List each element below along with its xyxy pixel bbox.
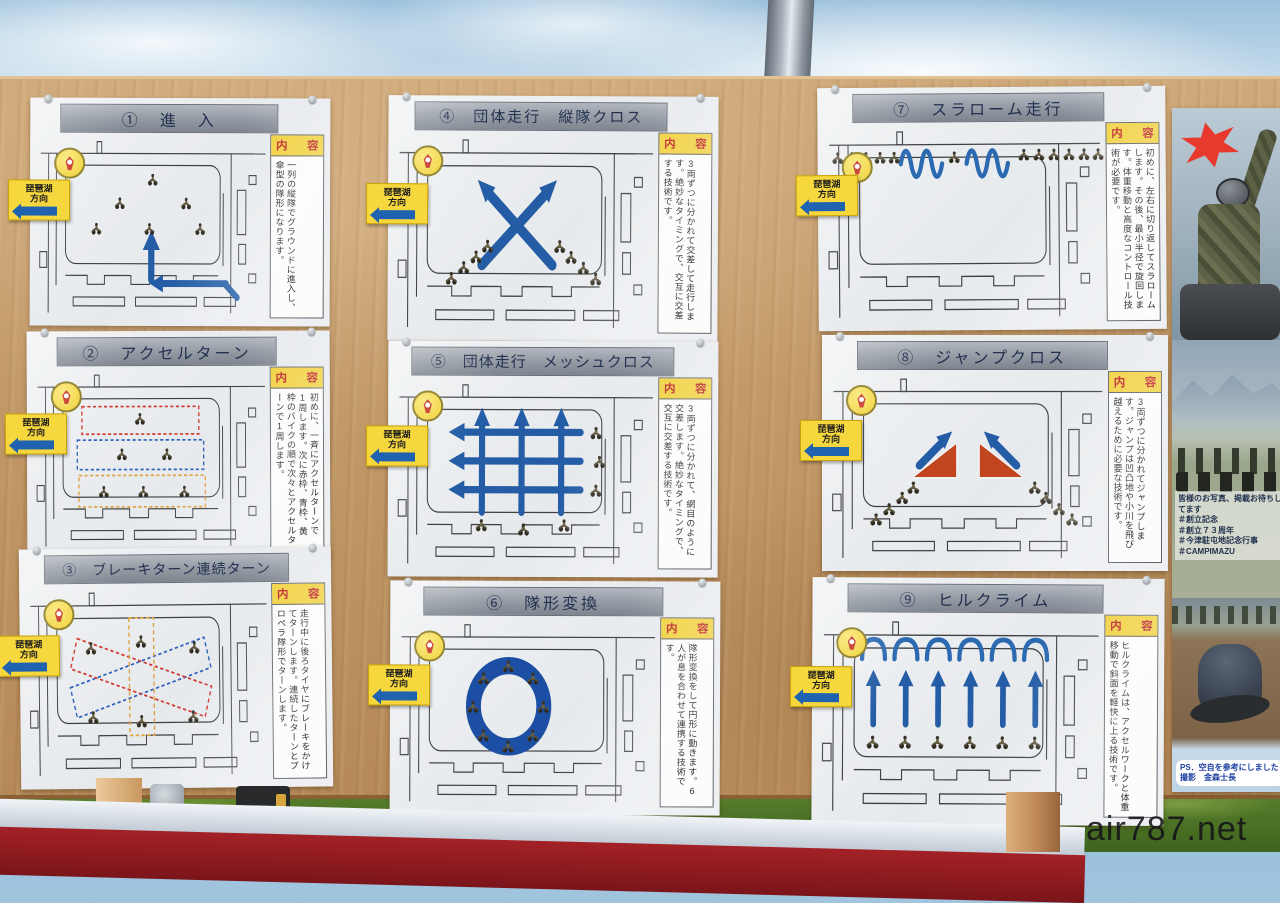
motorcycles [476, 427, 605, 536]
panel-title: ② アクセルターン [57, 337, 277, 367]
marshal-point-icon [836, 627, 867, 658]
wood-post-right [1006, 792, 1060, 852]
contents-text: 走行中に後ろタイヤにブレーキをかけてターンします。連続したターンとプロペラ隊形で… [272, 605, 312, 775]
left-arrow-icon [21, 207, 57, 216]
contents-text: 隊形変換をして円形に動きます。6人が息を合わせて連携する技術です。 [661, 639, 700, 803]
ps-note-line1: PS．空自を参考にしました [1180, 763, 1280, 773]
marshal-point-icon [412, 391, 443, 422]
contents-text: 初めに、一斉にアクセルターンで1周します。次に赤枠、青枠、黄枠のバイクの順で次々… [271, 389, 322, 547]
motorcycles [86, 635, 200, 728]
panel-title: ⑧ ジャンプクロス [857, 341, 1108, 370]
photo-column: 皆様のお写真、掲載お待ちしてます ＃創立記念 ＃創立７３周年 ＃今津駐屯地記念行… [1172, 108, 1280, 792]
contents-header: 内 容 [1105, 616, 1157, 637]
wooden-notice-board: ① 進 入 [0, 76, 1280, 799]
contents-header: 内 容 [272, 583, 324, 605]
motorcycles [867, 736, 1041, 750]
ps-note-line2: 撮影 金森士長 [1180, 773, 1280, 783]
contents-text: 3両ずつに分かれて、網目のように交差します。絶妙なタイミングで、交互に交差する技… [659, 399, 698, 565]
mesh-arrows [448, 407, 580, 512]
biwako-direction-sign: 琵琶湖 方向 [5, 413, 67, 454]
contents-header: 内 容 [661, 618, 713, 639]
climb-arrows [866, 670, 1044, 725]
panel-2-accel-turn: ② アクセルターン 内 容 [27, 330, 331, 559]
contents-text: 3両ずつに分かれて交差して走行します。絶妙なタイミングで、交互に交差する技術です… [658, 155, 697, 330]
panel-1-entry: ① 進 入 [30, 97, 331, 326]
contents-strip: 内 容 走行中に後ろタイヤにブレーキをかけてターンします。連続したターンとプロペ… [271, 582, 327, 779]
panel-8-jump-cross: ⑧ ジャンプクロス [822, 335, 1168, 571]
cross-arrows [477, 180, 557, 265]
contents-header: 内 容 [1109, 372, 1161, 393]
contents-strip: 内 容 3両ずつに分かれてジャンプします。ジャンプは凹凸地や小川を飛び越えるため… [1108, 371, 1162, 563]
panel-5-mesh-cross: ⑤ 団体走行 メッシュクロス [388, 340, 719, 577]
motorcycles-row [1176, 472, 1280, 492]
biwako-direction-sign: 琵琶湖 方向 [366, 183, 428, 224]
panel-4-column-cross: ④ 団体走行 縦隊クロス [387, 95, 718, 342]
contents-header: 内 容 [271, 367, 323, 388]
marshal-point-icon [54, 148, 85, 179]
photo-rider-waving [1172, 108, 1280, 340]
motorcycle [1180, 284, 1280, 340]
left-arrow-icon [803, 693, 839, 702]
hill-arches [862, 639, 1047, 660]
hashtag: ＃CAMPIMAZU [1178, 547, 1280, 558]
spectators [1172, 606, 1280, 624]
panel-3-brake-turn: ③ ブレーキターン連続ターン 内 [19, 546, 333, 789]
marshal-point-icon [51, 381, 82, 412]
hashtag: ＃創立７３周年 [1178, 526, 1280, 537]
left-arrow-icon [381, 692, 417, 701]
photo-group-lineup: 皆様のお写真、掲載お待ちしてます ＃創立記念 ＃創立７３周年 ＃今津駐屯地記念行… [1172, 340, 1280, 598]
contents-text: ヒルクライムは、アクセルワークと体重移動で斜面を軽快に上る技術です。 [1104, 637, 1132, 814]
contents-strip: 内 容 隊形変換をして円形に動きます。6人が息を合わせて連携する技術です。 [660, 617, 715, 807]
marshal-point-icon [412, 145, 443, 176]
biwako-direction-sign: 琵琶湖 方向 [800, 420, 862, 461]
biwako-direction-sign: 琵琶湖 方向 [0, 636, 60, 678]
contents-text: 3両ずつに分かれてジャンプします。ジャンプは凹凸地や小川を飛び越えるために必要な… [1109, 393, 1148, 559]
panel-title: ⑦ スラローム走行 [852, 92, 1105, 123]
contents-header: 内 容 [1106, 123, 1158, 144]
contents-strip: 内 容 初めに、一斉にアクセルターンで1周します。次に赤枠、青枠、黄枠のバイクの… [270, 366, 325, 550]
panel-7-slalom: ⑦ スラローム走行 [817, 86, 1167, 331]
contents-text: 一列の縦隊でグラウンドに進入し、傘型の隊形になります。 [271, 156, 299, 314]
photo-dirt-rider: PS．空自を参考にしました 撮影 金森士長 [1172, 598, 1280, 792]
motorcycles [446, 240, 601, 286]
watermark-text: air787.net [1086, 810, 1247, 849]
panel-title: ③ ブレーキターン連続ターン [44, 553, 290, 585]
panel-title: ① 進 入 [60, 104, 278, 134]
metal-pole [764, 0, 815, 88]
photo-caption: 皆様のお写真、掲載お待ちしてます ＃創立記念 ＃創立７３周年 ＃今津駐屯地記念行… [1175, 491, 1280, 560]
motorcycles [99, 413, 189, 498]
biwako-direction-sign: 琵琶湖 方向 [790, 666, 852, 707]
contents-text: 初めに、左右に切り返してスラロームします。その後、最小半径で旋回します。体重移動… [1107, 144, 1158, 317]
contents-strip: 内 容 初めに、左右に切り返してスラロームします。その後、最小半径で旋回します。… [1105, 122, 1160, 321]
contents-header: 内 容 [659, 378, 711, 399]
contents-header: 内 容 [659, 134, 711, 155]
soldiers-row [1178, 448, 1278, 474]
biwako-direction-sign: 琵琶湖 方向 [8, 179, 70, 220]
left-arrow-icon [809, 202, 845, 211]
marshal-point-icon [846, 385, 877, 416]
contents-strip: 内 容 3両ずつに分かれて、網目のように交差します。絶妙なタイミングで、交互に交… [658, 377, 713, 569]
left-arrow-icon [379, 210, 415, 219]
caption-text: 皆様のお写真、掲載お待ちしてます [1178, 494, 1280, 515]
biwako-direction-sign: 琵琶湖 方向 [366, 425, 428, 466]
marshal-point-icon [414, 631, 445, 662]
left-arrow-icon [11, 663, 47, 672]
panel-title: ⑨ ヒルクライム [848, 583, 1104, 613]
contents-strip: 内 容 3両ずつに分かれて交差して走行します。絶妙なタイミングで、交互に交差する… [657, 133, 712, 334]
contents-strip: 内 容 ヒルクライムは、アクセルワークと体重移動で斜面を軽快に上る技術です。 [1103, 615, 1158, 818]
panel-title: ⑥ 隊形変換 [423, 587, 663, 617]
left-arrow-icon [18, 441, 54, 450]
contents-header: 内 容 [271, 135, 323, 156]
mountains [1172, 364, 1280, 418]
panel-title: ④ 団体走行 縦隊クロス [415, 101, 668, 131]
contents-strip: 内 容 一列の縦隊でグラウンドに進入し、傘型の隊形になります。 [270, 134, 325, 318]
left-arrow-icon [813, 447, 849, 456]
biwako-direction-sign: 琵琶湖 方向 [796, 175, 858, 216]
hashtag: ＃今津駐屯地記念行事 [1178, 536, 1280, 547]
left-arrow-icon [379, 452, 415, 461]
starburst-badge [1178, 117, 1242, 174]
motorcycles [92, 174, 205, 235]
biwako-direction-sign: 琵琶湖 方向 [368, 665, 430, 706]
panel-6-formation-change: ⑥ 隊形変換 内 容 隊形変換をして円形に動きます。6人が息 [390, 580, 721, 815]
hashtag: ＃創立記念 [1178, 515, 1280, 526]
panel-9-hill-climb: ⑨ ヒルクライム [811, 577, 1164, 826]
marshal-point-icon [43, 599, 74, 630]
ps-note: PS．空自を参考にしました 撮影 金森士長 [1176, 760, 1280, 786]
panel-title: ⑤ 団体走行 メッシュクロス [411, 347, 674, 377]
